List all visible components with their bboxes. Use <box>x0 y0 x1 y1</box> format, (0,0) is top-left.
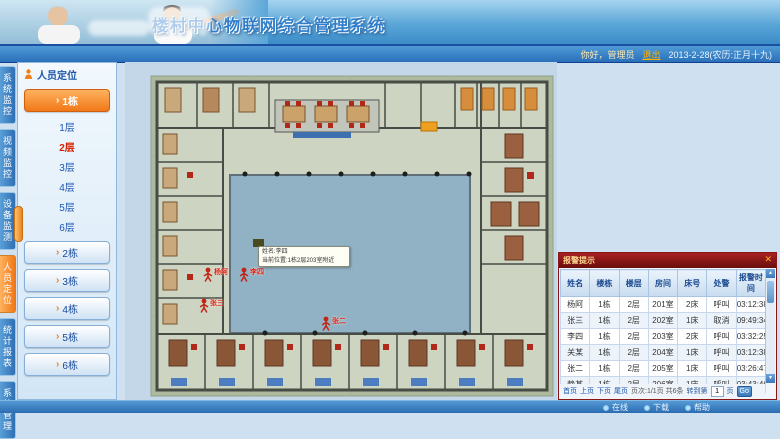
nav-tab-2[interactable]: 视频监控 <box>0 129 16 187</box>
table-row[interactable]: 张三1栋2层202室1床取消09:49:34 <box>561 313 766 329</box>
column-header: 楼栋 <box>590 270 619 297</box>
table-cell: 2床 <box>678 297 707 313</box>
person-marker-label: 张二 <box>332 316 346 326</box>
building-button-5[interactable]: ›5栋 <box>24 325 110 348</box>
table-cell: 呼叫 <box>707 329 736 345</box>
table-cell: 201室 <box>648 297 677 313</box>
pager-link-2[interactable]: 上页 <box>580 386 594 396</box>
column-header: 楼层 <box>619 270 648 297</box>
table-cell: 杨阿 <box>561 297 590 313</box>
table-cell: 03:32:25 <box>736 329 765 345</box>
arrow-icon: › <box>56 277 59 285</box>
floor-list: 1层2层3层4层5层6层 <box>18 117 116 236</box>
column-header: 房间 <box>648 270 677 297</box>
table-cell: 03:26:47 <box>736 361 765 377</box>
nav-tabs: 系统监控视频监控设备监测人员定位统计报表系统管理 <box>0 66 16 439</box>
building-label: 2栋 <box>62 245 78 260</box>
sidebar-collapse-handle[interactable] <box>14 206 23 242</box>
table-cell: 2层 <box>619 313 648 329</box>
table-cell: 1床 <box>678 361 707 377</box>
table-cell: 张三 <box>561 313 590 329</box>
column-header: 报警时间 <box>736 270 765 297</box>
floor-link-3[interactable]: 3层 <box>59 157 75 176</box>
alarm-table: 姓名楼栋楼层房间床号处警报警时间 杨阿1栋2层201室2床呼叫03:12:38张… <box>560 269 766 393</box>
nav-tab-1[interactable]: 系统监控 <box>0 66 16 124</box>
person-icon <box>199 298 209 313</box>
table-cell: 2层 <box>619 361 648 377</box>
nav-tab-5[interactable]: 统计报表 <box>0 318 16 376</box>
table-cell: 1栋 <box>590 345 619 361</box>
scroll-up-icon[interactable]: ▲ <box>766 269 775 278</box>
status-item-1[interactable]: 在线 <box>603 402 628 413</box>
table-cell: 203室 <box>648 329 677 345</box>
floorplan-drawing <box>125 62 557 400</box>
building-label: 3栋 <box>62 273 78 288</box>
table-cell: 呼叫 <box>707 297 736 313</box>
scroll-thumb[interactable] <box>767 281 774 303</box>
person-icon <box>239 267 249 282</box>
table-row[interactable]: 李四1栋2层203室2床呼叫03:32:25 <box>561 329 766 345</box>
table-cell: 取消 <box>707 313 736 329</box>
scroll-down-icon[interactable]: ▼ <box>766 374 775 383</box>
goto-suffix: 页 <box>727 386 734 396</box>
table-cell: 1栋 <box>590 329 619 345</box>
status-dot-icon <box>644 405 650 411</box>
person-marker-4[interactable]: 张二 <box>321 316 346 331</box>
arrow-icon: › <box>56 305 59 313</box>
highlighted-room <box>421 122 437 131</box>
status-item-2[interactable]: 下载 <box>644 402 669 413</box>
sidebar-header: 人员定位 <box>18 63 116 84</box>
status-label: 下载 <box>653 402 669 413</box>
table-cell: 2层 <box>619 329 648 345</box>
table-cell: 呼叫 <box>707 361 736 377</box>
person-marker-1[interactable]: 杨阿 <box>203 267 228 282</box>
person-marker-3[interactable]: 张三 <box>199 298 224 313</box>
table-cell: 1栋 <box>590 361 619 377</box>
person-marker-label: 李四 <box>250 267 264 277</box>
censor-blur <box>88 20 150 36</box>
pager-link-4[interactable]: 尾页 <box>614 386 628 396</box>
status-item-3[interactable]: 帮助 <box>685 402 710 413</box>
pager-links: 首页上页下页尾页 <box>563 386 628 396</box>
alarm-scrollbar[interactable]: ▲ ▼ <box>765 269 775 383</box>
column-header: 处警 <box>707 270 736 297</box>
alarm-titlebar: 报警提示 ✕ <box>559 253 776 268</box>
building-button-6[interactable]: ›6栋 <box>24 353 110 376</box>
arrow-icon: › <box>56 97 59 105</box>
table-cell: 205室 <box>648 361 677 377</box>
person-icon <box>321 316 331 331</box>
alarm-title: 报警提示 <box>563 255 595 268</box>
table-cell: 1栋 <box>590 313 619 329</box>
arrow-icon: › <box>56 249 59 257</box>
status-label: 在线 <box>612 402 628 413</box>
pager-info: 页次:1/1页 共6条 <box>631 386 684 396</box>
person-orange-icon <box>24 69 33 80</box>
building-label: 5栋 <box>62 329 78 344</box>
person-marker-label: 杨阿 <box>214 267 228 277</box>
person-marker-label: 张三 <box>210 298 224 308</box>
topbar: 你好，管理员 退出 2013-2-28(农历:正月十九) <box>0 46 780 63</box>
column-header: 姓名 <box>561 270 590 297</box>
user-greeting: 你好，管理员 <box>580 48 634 61</box>
building-button-3[interactable]: ›3栋 <box>24 269 110 292</box>
header-banner: 楼村中心物联网综合管理系统 <box>0 0 780 46</box>
go-button[interactable]: Go <box>737 386 752 397</box>
building-label: 1栋 <box>62 93 78 108</box>
arrow-icon: › <box>56 361 59 369</box>
logout-link[interactable]: 退出 <box>642 48 660 61</box>
table-cell: 呼叫 <box>707 345 736 361</box>
table-cell: 李四 <box>561 329 590 345</box>
floor-link-2[interactable]: 2层 <box>59 137 75 156</box>
table-cell: 张二 <box>561 361 590 377</box>
table-cell: 2床 <box>678 329 707 345</box>
status-dot-icon <box>685 405 691 411</box>
building-label: 4栋 <box>62 301 78 316</box>
column-header: 床号 <box>678 270 707 297</box>
censor-blur <box>148 7 210 35</box>
table-row[interactable]: 杨阿1栋2层201室2床呼叫03:12:38 <box>561 297 766 313</box>
status-bar: 在线下载帮助 <box>0 400 780 413</box>
tooltip-line1: 姓名:李四 <box>262 248 346 257</box>
pagination-bar: 首页上页下页尾页 页次:1/1页 共6条 转到第 页 Go <box>560 384 765 398</box>
location-tooltip: 姓名:李四 当前位置:1栋2层203室附近 <box>258 246 350 267</box>
building-label: 6栋 <box>62 357 78 372</box>
person-marker-2[interactable]: 李四 <box>239 267 264 282</box>
alarm-popup: 报警提示 ✕ 姓名楼栋楼层房间床号处警报警时间 杨阿1栋2层201室2床呼叫03… <box>558 252 777 400</box>
table-cell: 1床 <box>678 345 707 361</box>
goto-prefix: 转到第 <box>687 386 708 396</box>
table-row[interactable]: 关某1栋2层204室1床呼叫03:12:38 <box>561 345 766 361</box>
table-cell: 1床 <box>678 313 707 329</box>
date-display: 2013-2-28(农历:正月十九) <box>668 48 772 61</box>
table-cell: 204室 <box>648 345 677 361</box>
table-cell: 1栋 <box>590 297 619 313</box>
pager-link-3[interactable]: 下页 <box>597 386 611 396</box>
table-cell: 2层 <box>619 345 648 361</box>
tooltip-line2: 当前位置:1栋2层203室附近 <box>262 257 346 266</box>
floor-link-5[interactable]: 5层 <box>59 197 75 216</box>
building-button-2[interactable]: ›2栋 <box>24 241 110 264</box>
sidebar-panel: 人员定位 › 1栋 1层2层3层4层5层6层 ›2栋›3栋›4栋›5栋›6栋 <box>17 62 117 400</box>
floorplan-area[interactable]: 姓名:李四 当前位置:1栋2层203室附近 杨阿李四张三张二 <box>125 62 557 400</box>
goto-page-input[interactable] <box>711 386 724 397</box>
table-cell: 03:12:38 <box>736 297 765 313</box>
floor-link-4[interactable]: 4层 <box>59 177 75 196</box>
table-cell: 关某 <box>561 345 590 361</box>
table-cell: 03:12:38 <box>736 345 765 361</box>
building-button-1[interactable]: › 1栋 <box>24 89 110 112</box>
table-cell: 2层 <box>619 297 648 313</box>
floor-link-1[interactable]: 1层 <box>59 117 75 136</box>
nav-tab-4[interactable]: 人员定位 <box>0 255 16 313</box>
building-button-4[interactable]: ›4栋 <box>24 297 110 320</box>
person-icon <box>203 267 213 282</box>
table-cell: 09:49:34 <box>736 313 765 329</box>
building-list: ›2栋›3栋›4栋›5栋›6栋 <box>18 241 116 376</box>
arrow-icon: › <box>56 333 59 341</box>
pager-link-1[interactable]: 首页 <box>563 386 577 396</box>
floor-link-6[interactable]: 6层 <box>59 217 75 236</box>
sidebar-title: 人员定位 <box>37 67 77 82</box>
status-items: 在线下载帮助 <box>603 402 710 413</box>
status-label: 帮助 <box>694 402 710 413</box>
status-dot-icon <box>603 405 609 411</box>
alarm-table-header: 姓名楼栋楼层房间床号处警报警时间 <box>561 270 766 297</box>
close-icon[interactable]: ✕ <box>764 255 772 268</box>
table-cell: 202室 <box>648 313 677 329</box>
table-row[interactable]: 张二1栋2层205室1床呼叫03:26:47 <box>561 361 766 377</box>
